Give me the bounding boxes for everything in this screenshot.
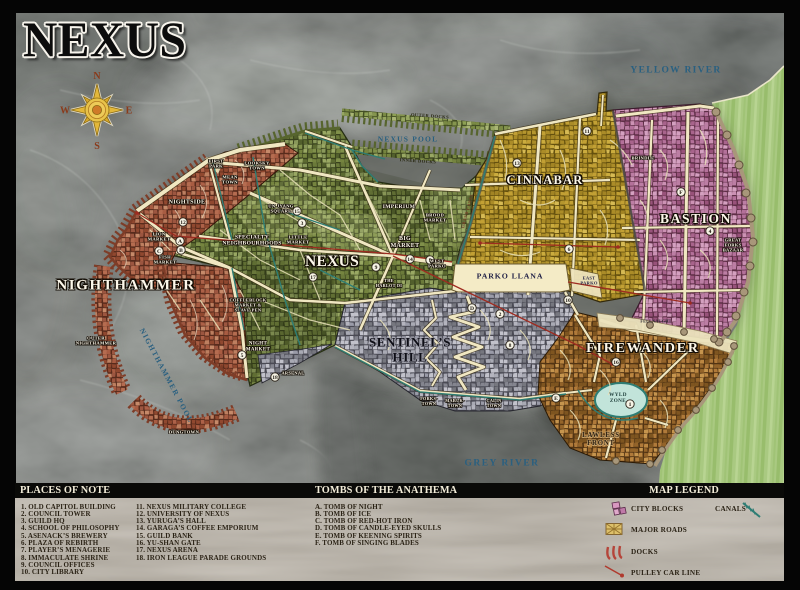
svg-text:1: 1 (629, 402, 632, 408)
svg-text:18: 18 (272, 375, 278, 381)
svg-text:11: 11 (584, 129, 589, 135)
svg-text:F: F (679, 190, 683, 196)
svg-text:E: E (554, 396, 558, 402)
svg-text:6: 6 (568, 247, 571, 253)
svg-text:W: W (60, 106, 70, 117)
svg-text:9: 9 (375, 265, 378, 271)
svg-text:13: 13 (514, 161, 520, 167)
svg-text:B: B (179, 248, 183, 254)
svg-text:8: 8 (509, 343, 512, 349)
svg-text:15: 15 (294, 209, 300, 215)
svg-text:12: 12 (180, 220, 186, 226)
svg-text:4: 4 (709, 229, 712, 235)
svg-text:14: 14 (407, 257, 413, 263)
svg-text:A: A (178, 239, 182, 245)
svg-text:5: 5 (241, 353, 244, 359)
svg-text:2: 2 (499, 312, 502, 318)
svg-text:D: D (470, 306, 474, 312)
svg-text:N: N (93, 71, 101, 82)
svg-text:3: 3 (301, 221, 304, 227)
svg-text:17: 17 (310, 275, 316, 281)
svg-text:10: 10 (565, 298, 571, 304)
svg-text:S: S (94, 141, 100, 152)
svg-text:E: E (126, 106, 133, 117)
svg-text:16: 16 (613, 360, 619, 366)
